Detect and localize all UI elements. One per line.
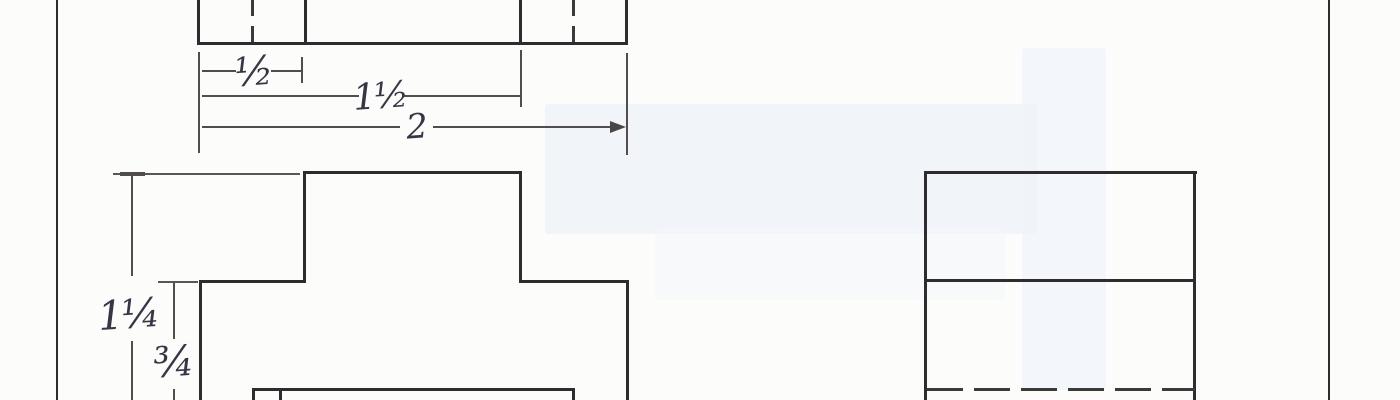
front-view-left-shoulder xyxy=(199,280,306,283)
extension-line-left xyxy=(198,52,200,153)
front-view-slot-inner-line xyxy=(279,388,282,400)
side-view-top-edge xyxy=(924,171,1197,174)
dimension-label-one-and-half: 1½ xyxy=(352,77,408,117)
dimension-label-one-and-quarter: 1¼ xyxy=(97,293,160,337)
side-view-step-line xyxy=(924,279,1196,282)
sheet-border-right xyxy=(1328,0,1330,400)
front-view-slot-right-edge xyxy=(572,388,575,400)
dimension-arrowhead-two xyxy=(610,121,626,133)
front-view-upper-left-edge xyxy=(303,171,306,283)
dimension-line-half-right xyxy=(271,70,302,72)
top-view-hidden-line-right xyxy=(572,0,575,44)
top-view-hidden-line-left xyxy=(251,0,254,44)
front-view-slot-top-edge xyxy=(252,388,575,391)
sheet-border-left xyxy=(56,0,58,400)
top-view-bottom-edge xyxy=(197,42,628,45)
extension-line-three-quarter xyxy=(158,281,198,283)
side-view-hidden-line xyxy=(927,388,1195,391)
front-view-right-edge xyxy=(626,280,629,400)
side-view-right-edge xyxy=(1193,171,1196,400)
dimension-tick-half xyxy=(301,57,303,83)
dimension-line-three-quarter-upper xyxy=(173,283,175,339)
side-view-left-edge xyxy=(924,171,927,400)
dimension-line-three-quarter-lower xyxy=(173,389,175,400)
dimension-line-two-right xyxy=(433,126,611,128)
scan-smudge-lower xyxy=(655,228,1005,300)
extension-line-right xyxy=(626,53,628,155)
dimension-line-one-and-half-right xyxy=(402,95,520,97)
dimension-line-one-and-quarter-upper xyxy=(131,176,133,276)
front-view-left-edge xyxy=(199,280,202,400)
front-view-right-shoulder xyxy=(519,280,629,283)
dimension-line-half-left xyxy=(202,70,236,72)
top-view-left-edge xyxy=(197,0,200,44)
extension-line-middle xyxy=(520,50,522,107)
top-view-right-edge xyxy=(625,0,628,44)
dimension-label-three-quarter: ¾ xyxy=(152,340,194,385)
dimension-label-half: ½ xyxy=(233,51,272,93)
top-view-step-line-left xyxy=(304,0,307,44)
dimension-label-two: 2 xyxy=(405,109,427,144)
front-view-slot-left-edge xyxy=(252,388,255,400)
front-view-upper-right-edge xyxy=(519,171,522,283)
top-view-step-line-right xyxy=(519,0,522,44)
dimension-line-one-and-quarter-lower xyxy=(131,341,133,400)
drawing-sheet: ½ 1½ 2 1¼ ¾ xyxy=(0,0,1400,400)
dimension-line-two-left xyxy=(202,126,400,128)
dimension-line-one-and-half-left xyxy=(202,95,359,97)
scan-smudge-vertical xyxy=(1022,48,1106,390)
front-view-top-edge xyxy=(303,171,522,174)
